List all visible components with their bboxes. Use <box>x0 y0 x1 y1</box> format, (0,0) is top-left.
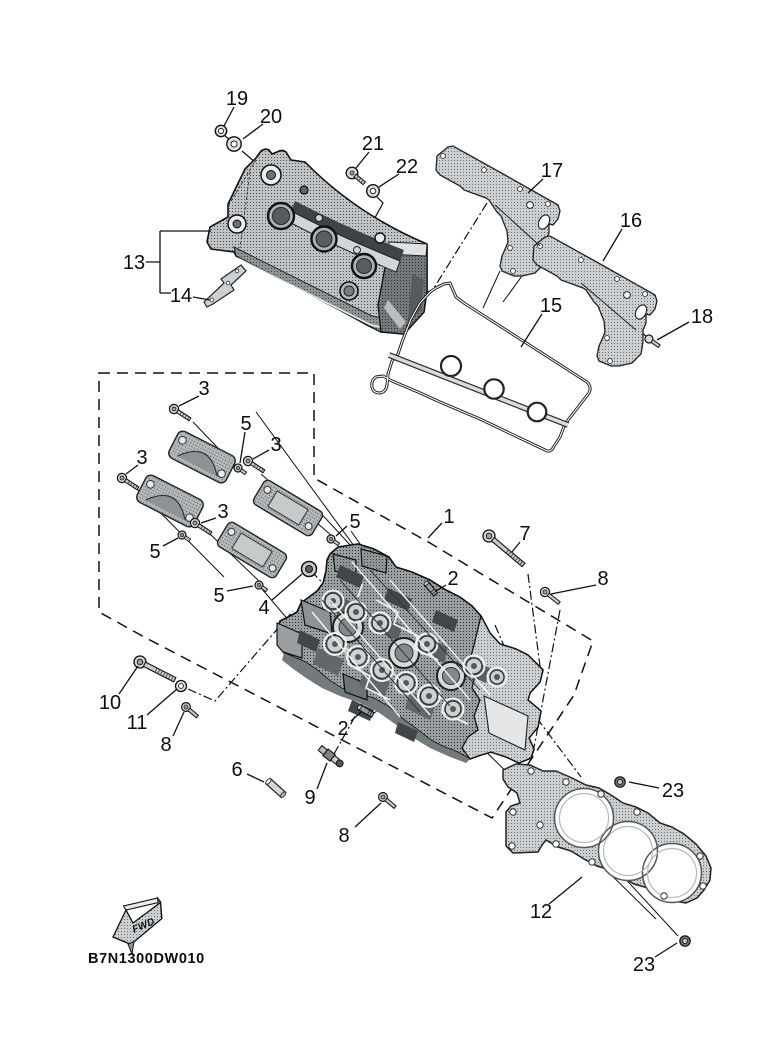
svg-text:11: 11 <box>127 712 148 734</box>
svg-text:14: 14 <box>170 285 192 307</box>
svg-text:3: 3 <box>198 378 209 400</box>
svg-text:2: 2 <box>447 568 458 590</box>
svg-text:22: 22 <box>396 156 418 178</box>
svg-text:B7N1300DW010: B7N1300DW010 <box>88 951 205 967</box>
svg-text:7: 7 <box>519 523 530 545</box>
svg-text:20: 20 <box>260 106 282 128</box>
svg-text:18: 18 <box>691 306 713 328</box>
svg-text:13: 13 <box>123 252 145 274</box>
svg-text:5: 5 <box>149 541 160 563</box>
svg-text:2: 2 <box>337 718 348 740</box>
svg-text:8: 8 <box>597 568 608 590</box>
svg-text:12: 12 <box>530 901 552 923</box>
svg-text:3: 3 <box>217 501 228 523</box>
svg-text:4: 4 <box>258 597 269 619</box>
svg-text:15: 15 <box>540 295 562 317</box>
svg-text:8: 8 <box>338 825 349 847</box>
svg-text:21: 21 <box>362 133 384 155</box>
svg-text:3: 3 <box>270 434 281 456</box>
svg-text:19: 19 <box>226 88 248 110</box>
svg-text:10: 10 <box>99 692 121 714</box>
svg-text:23: 23 <box>662 780 684 802</box>
svg-text:17: 17 <box>541 160 563 182</box>
svg-text:23: 23 <box>633 954 655 976</box>
svg-text:5: 5 <box>240 413 251 435</box>
svg-text:5: 5 <box>213 585 224 607</box>
svg-text:6: 6 <box>231 759 242 781</box>
svg-text:3: 3 <box>136 447 147 469</box>
svg-text:16: 16 <box>620 210 642 232</box>
svg-text:1: 1 <box>443 506 454 528</box>
svg-text:5: 5 <box>349 511 360 533</box>
svg-text:8: 8 <box>160 734 171 756</box>
svg-text:9: 9 <box>304 787 315 809</box>
